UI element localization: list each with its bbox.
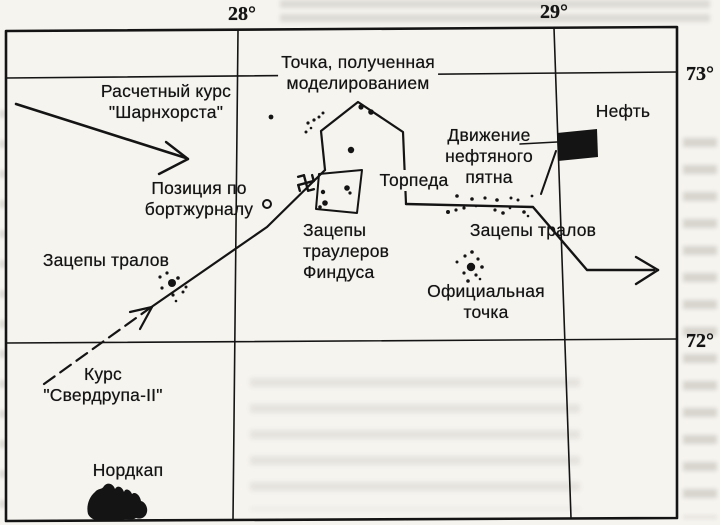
official-point-label: Официальнаяточка: [427, 281, 545, 323]
snag-dot: [321, 190, 325, 194]
snag-dot: [358, 104, 363, 109]
log-position-label: Позиция побортжурналу: [145, 178, 253, 220]
snag-dot: [480, 265, 484, 269]
snag-dot: [322, 112, 325, 115]
snag-dot: [467, 263, 475, 271]
snag-dot: [470, 250, 474, 254]
logbook-position-marker: [263, 200, 271, 208]
torpedo-label: Торпеда: [377, 170, 452, 191]
label-line: Официальная: [427, 281, 545, 302]
lat-73-label: 73°: [686, 63, 714, 86]
snag-dot: [475, 205, 478, 208]
parallel-72: [6, 339, 677, 343]
track-arrowhead-b: [636, 270, 658, 284]
label-line: Нордкап: [93, 460, 164, 481]
oil-drift-line: [541, 151, 556, 194]
snag-dot: [318, 116, 321, 119]
sverdrup-course-label: Курс"Свердрупа-II": [43, 364, 162, 406]
snag-dot: [476, 257, 479, 260]
label-line: Зацепы: [303, 220, 389, 241]
snag-dot: [474, 273, 477, 276]
swastika-stroke: [298, 185, 300, 191]
label-line: моделированием: [281, 73, 435, 94]
snag-dot: [510, 197, 513, 200]
label-line: Точка, полученная: [281, 52, 435, 73]
findus-snags-label: ЗацепытраулеровФиндуса: [303, 220, 389, 283]
scanned-map-figure: Точка, полученнаямоделированиемРасчетный…: [0, 0, 720, 525]
label-line: Зацепы тралов: [43, 250, 169, 271]
label-line: Движение: [445, 125, 533, 146]
label-line: "Свердрупа-II": [43, 385, 162, 406]
swastika-stroke: [308, 189, 314, 191]
label-line: траулеров: [303, 241, 389, 262]
nordkap-label: Нордкап: [93, 460, 164, 481]
snag-dot: [175, 300, 178, 303]
snag-dot: [310, 127, 313, 130]
calc-course-label: Расчетный курс"Шарнхорста": [98, 81, 234, 123]
label-line: пятна: [445, 167, 533, 188]
label-line: Расчетный курс: [101, 81, 231, 102]
snag-dot: [165, 271, 168, 274]
label-line: бортжурналу: [145, 199, 253, 220]
trawl-snags-right-label: Зацепы тралов: [470, 220, 596, 241]
snag-dot: [305, 131, 308, 134]
snag-dot: [522, 210, 526, 214]
snag-dot: [479, 278, 482, 281]
snag-dot: [185, 286, 188, 289]
oil-label: Нефть: [593, 101, 654, 122]
snag-dot: [493, 208, 496, 211]
snag-dot: [531, 195, 534, 198]
meridian-29: [554, 28, 571, 518]
snag-dot: [168, 279, 176, 287]
oil-patch: [557, 129, 598, 161]
snag-dot: [455, 194, 459, 198]
snag-dot: [454, 208, 457, 211]
snag-dot: [368, 109, 374, 115]
scharnhorst-arrowhead-b: [159, 159, 188, 174]
snag-dot: [182, 291, 185, 294]
snag-dot: [462, 271, 465, 274]
snag-dot: [171, 293, 174, 296]
label-line: Финдуса: [303, 262, 389, 283]
snag-dot: [348, 191, 351, 194]
oil-drift-label: Движениенефтяногопятна: [445, 125, 533, 188]
label-line: Торпеда: [380, 170, 449, 191]
snag-dot: [318, 205, 322, 209]
snag-dot: [348, 147, 354, 153]
snag-dot: [456, 261, 459, 264]
snag-dot: [463, 254, 466, 257]
swastika-stroke: [312, 175, 314, 181]
snag-dot: [306, 121, 309, 124]
snag-dot: [501, 211, 505, 215]
snag-dot: [462, 206, 465, 209]
lon-28-label: 28°: [228, 3, 256, 26]
track-arrowhead-a: [636, 257, 658, 270]
snag-dot: [312, 118, 315, 121]
label-line: точка: [427, 302, 545, 323]
snag-dot: [470, 197, 474, 201]
snag-dot: [158, 275, 161, 278]
snag-dot: [160, 286, 163, 289]
snag-dot: [495, 198, 499, 202]
snag-dot: [509, 207, 512, 210]
label-line: нефтяного: [445, 146, 533, 167]
lon-29-label: 29°: [540, 1, 568, 24]
snag-dot: [344, 185, 350, 191]
snag-dot: [176, 276, 180, 280]
swastika-stroke: [298, 175, 304, 177]
snag-dot: [269, 115, 274, 120]
snag-dot: [517, 199, 520, 202]
snag-dot: [527, 215, 530, 218]
snag-dot: [483, 196, 486, 199]
model-point-label: Точка, полученнаямоделированием: [278, 52, 438, 94]
nordkap-landmass: [87, 484, 147, 521]
label-line: Курс: [43, 364, 162, 385]
snag-dot: [446, 210, 450, 214]
lat-72-label: 72°: [686, 330, 714, 353]
snag-dot: [322, 200, 328, 206]
label-line: Зацепы тралов: [470, 220, 596, 241]
label-line: Позиция по: [145, 178, 253, 199]
label-line: "Шарнхорста": [101, 102, 231, 123]
label-line: Нефть: [596, 101, 651, 122]
trawl-snags-left-label: Зацепы тралов: [43, 250, 169, 271]
